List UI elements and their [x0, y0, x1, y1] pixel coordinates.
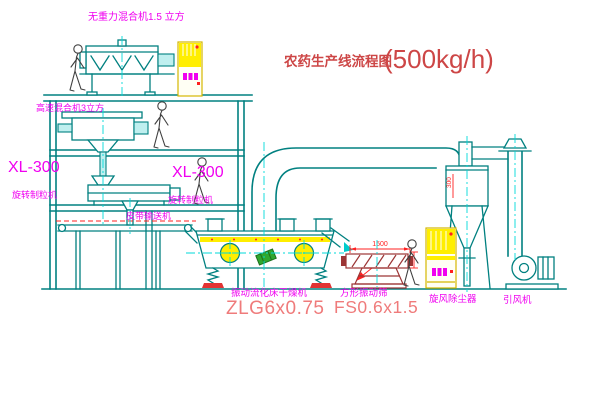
- fluid-bed-dryer: [196, 219, 334, 288]
- square-vibrating-sieve: 1500: [322, 228, 418, 288]
- label-granulator-center-model: XL-300: [172, 164, 224, 181]
- spring-base: [202, 283, 224, 288]
- spring-base: [310, 283, 332, 288]
- cabinet-text-marks: [432, 268, 436, 276]
- label-cyclone: 旋风除尘器: [429, 293, 477, 305]
- process-flow-drawing: 300 1500: [0, 0, 600, 403]
- induced-draft-fan: [506, 256, 558, 289]
- label-induced-fan: 引风机: [503, 294, 532, 306]
- belt-conveyor: [56, 221, 203, 289]
- dimension-sieve-length: 1500: [372, 241, 388, 248]
- indicator-light-icon: [195, 45, 198, 48]
- label-granulator-left-name: 旋转制粒机: [12, 189, 57, 200]
- page-title: 农药生产线流程图: [283, 53, 392, 69]
- label-high-speed-mixer: 高速混合机3立方: [36, 102, 104, 113]
- person-floor2: [154, 102, 169, 148]
- label-gravity-free-mixer: 无重力混合机1.5 立方: [88, 10, 185, 23]
- label-square-sieve-model: FS0.6x1.5: [334, 297, 418, 317]
- gravity-free-mixer: [80, 40, 174, 95]
- indicator-light-icon: [449, 232, 452, 235]
- label-fluid-bed-dryer-model: ZLG6x0.75: [226, 298, 325, 319]
- feed-arrow-icon: [344, 242, 353, 252]
- flow-diagram-canvas: 300 1500: [0, 0, 600, 403]
- label-granulator-left-model: XL-300: [8, 159, 60, 176]
- dust-collector-cabinet-right: [426, 228, 456, 288]
- dimension-cyclone-duct: 300: [446, 177, 453, 188]
- label-granulator-center-name: 旋转制粒机: [168, 194, 213, 205]
- dust-collector-cabinet-top: [178, 42, 202, 96]
- label-belt-conveyor: 皮带输送机: [126, 210, 171, 221]
- cabinet-text-marks: [183, 73, 187, 80]
- mixer-discharge-stub: [158, 54, 174, 66]
- page-title-capacity: (500kg/h): [384, 44, 494, 74]
